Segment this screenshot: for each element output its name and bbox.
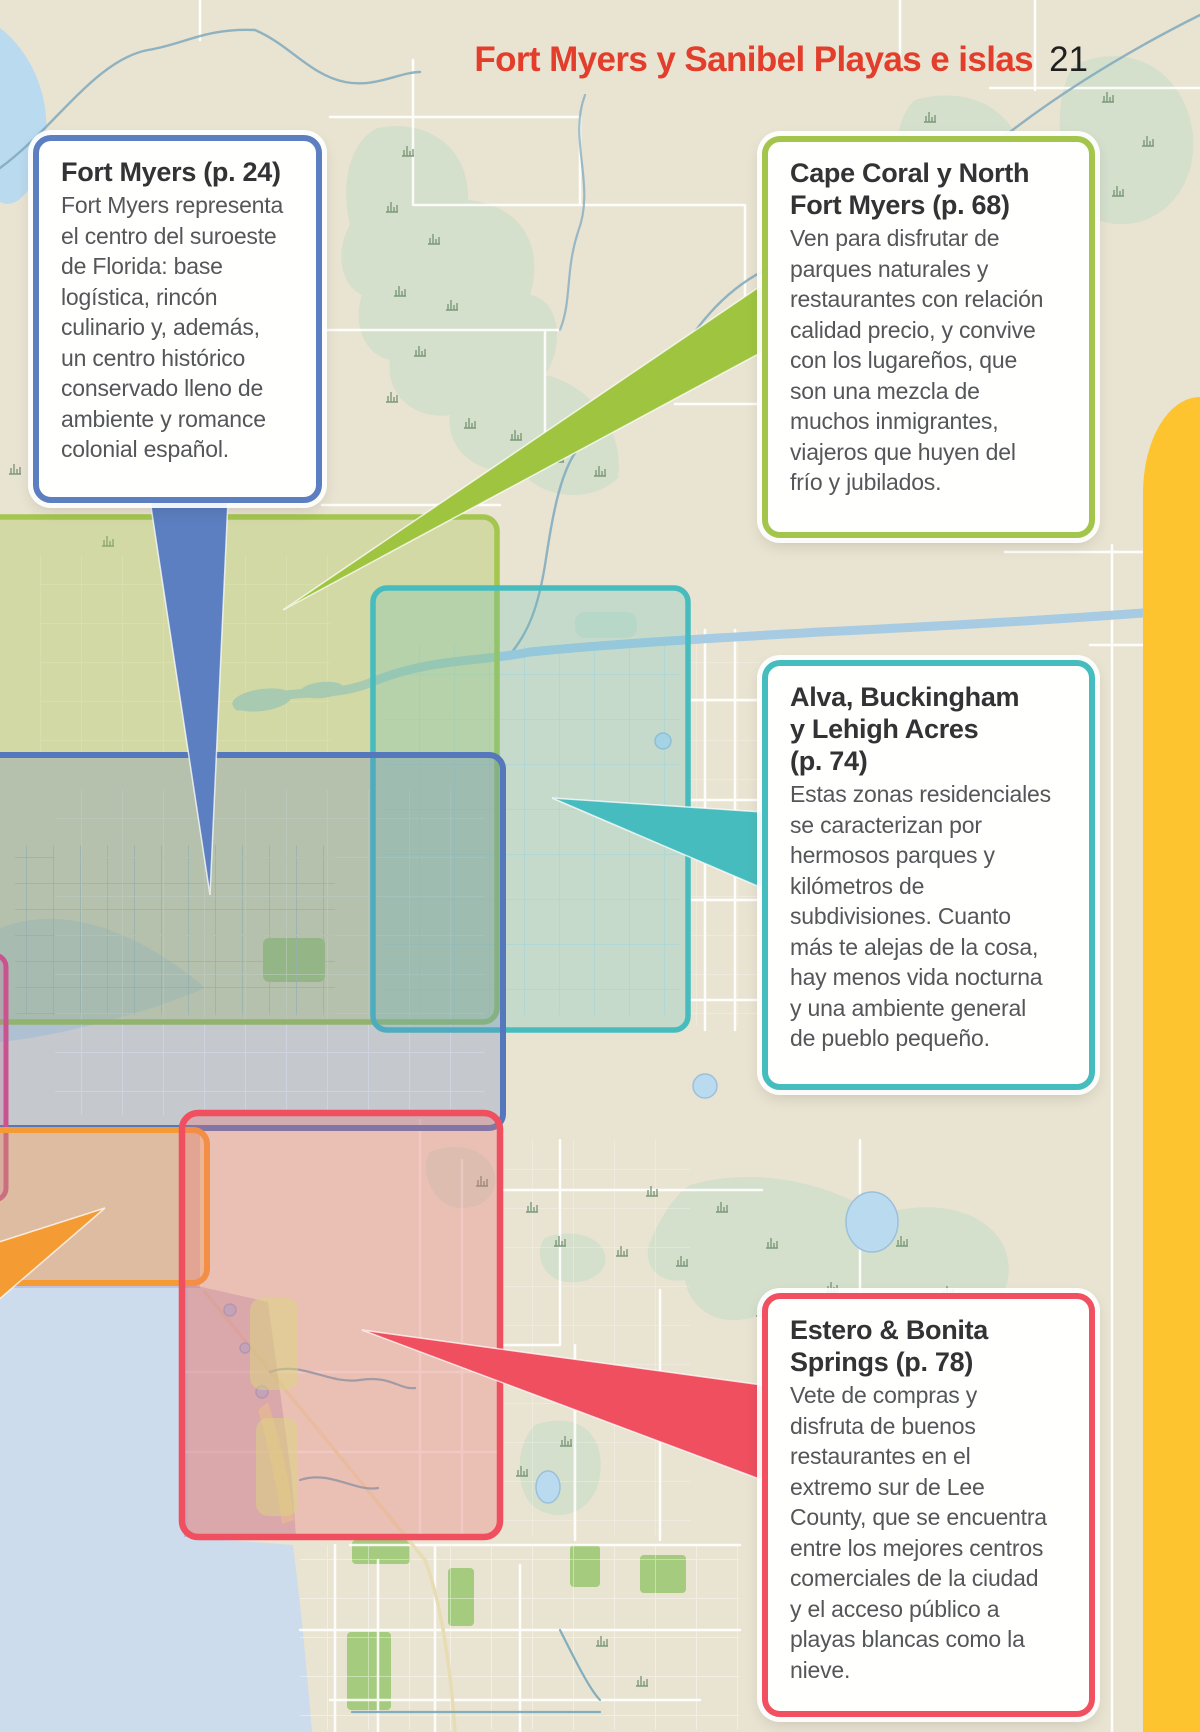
callout-title: Fort Myers (p. 24) [61,156,308,188]
callout-body: Ven para disfrutar de parques naturales … [790,223,1081,498]
fort-myers-region [0,755,503,1128]
callout-title: Cape Coral y North Fort Myers (p. 68) [790,157,1081,221]
page-title: Fort Myers y Sanibel Playas e islas [474,40,1033,80]
callout-alva: Alva, Buckingham y Lehigh Acres (p. 74) … [762,660,1095,1090]
callout-body: Estas zonas residenciales se caracteriza… [790,779,1081,1054]
page-header: Fort Myers y Sanibel Playas e islas 21 [474,40,1088,80]
page-number: 21 [1049,40,1088,80]
callout-body: Vete de compras y disfruta de buenos res… [790,1380,1081,1685]
callout-body: Fort Myers representa el centro del suro… [61,190,308,465]
callout-estero: Estero & Bonita Springs (p. 78) Vete de … [762,1293,1095,1717]
callout-title: Estero & Bonita Springs (p. 78) [790,1314,1081,1378]
callout-fort-myers: Fort Myers (p. 24) Fort Myers representa… [33,135,322,503]
callout-title: Alva, Buckingham y Lehigh Acres (p. 74) [790,681,1081,777]
callout-cape-coral: Cape Coral y North Fort Myers (p. 68) Ve… [762,136,1095,538]
estero-bonita-region [182,1113,500,1537]
yellow-side-panel [1143,397,1200,1732]
